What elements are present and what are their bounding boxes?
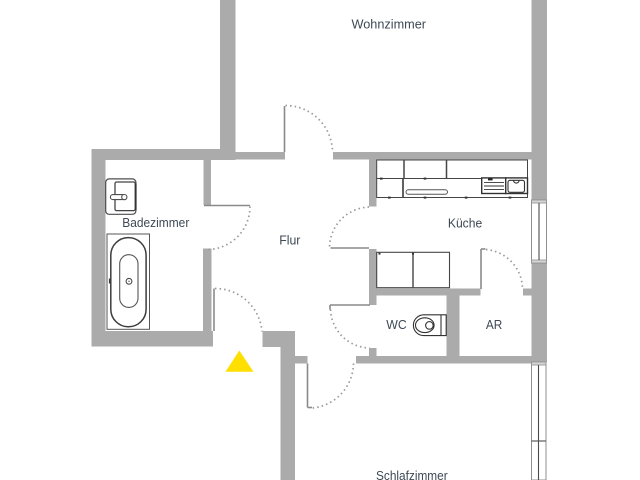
svg-text:Flur: Flur xyxy=(279,233,301,248)
svg-text:Küche: Küche xyxy=(448,216,482,231)
svg-text:Schlafzimmer: Schlafzimmer xyxy=(376,468,448,480)
svg-text:AR: AR xyxy=(486,317,502,332)
svg-text:Wohnzimmer: Wohnzimmer xyxy=(352,17,427,32)
svg-text:Badezimmer: Badezimmer xyxy=(122,215,190,230)
svg-text:WC: WC xyxy=(386,317,407,332)
